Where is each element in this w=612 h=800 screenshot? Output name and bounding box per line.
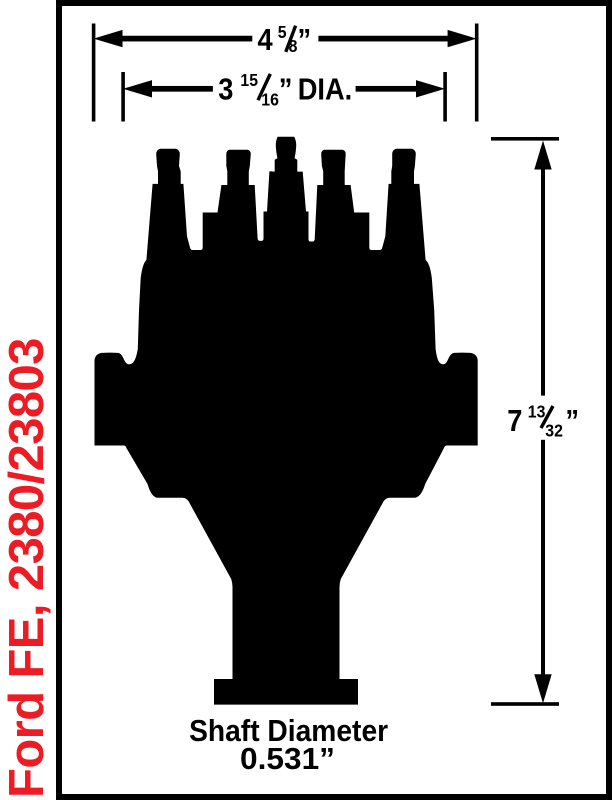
svg-text:32: 32 bbox=[545, 421, 563, 441]
svg-text:3: 3 bbox=[218, 73, 233, 107]
svg-text:DIA.: DIA. bbox=[298, 73, 353, 107]
svg-text:”: ” bbox=[565, 405, 579, 439]
svg-text:”: ” bbox=[279, 73, 293, 107]
svg-text:4: 4 bbox=[258, 24, 274, 58]
svg-text:13: 13 bbox=[528, 402, 546, 422]
svg-text:8: 8 bbox=[289, 36, 298, 56]
svg-text:7: 7 bbox=[507, 405, 522, 439]
svg-text:0.531”: 0.531” bbox=[240, 741, 335, 776]
svg-text:5: 5 bbox=[278, 22, 287, 42]
svg-text:15: 15 bbox=[240, 70, 258, 90]
svg-text:16: 16 bbox=[261, 89, 279, 109]
svg-text:”: ” bbox=[298, 24, 312, 58]
